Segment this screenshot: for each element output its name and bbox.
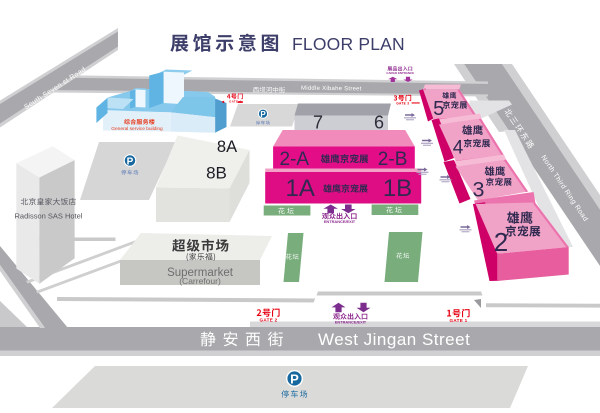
svg-text:7: 7 — [313, 113, 323, 133]
svg-text:2: 2 — [494, 227, 508, 257]
svg-text:3: 3 — [473, 178, 485, 202]
svg-text:P: P — [127, 156, 134, 167]
svg-text:2-A: 2-A — [280, 149, 310, 170]
svg-text:FLOOR PLAN: FLOOR PLAN — [292, 34, 405, 54]
svg-text:6: 6 — [374, 113, 384, 133]
svg-text:Radisson SAS Hotel: Radisson SAS Hotel — [15, 212, 83, 221]
svg-text:P: P — [290, 371, 299, 386]
svg-text:ENTRANCE/EXIT: ENTRANCE/EXIT — [324, 219, 356, 224]
svg-text:5: 5 — [433, 98, 444, 120]
svg-text:GATE 1: GATE 1 — [449, 318, 467, 323]
svg-text:(Carrefour): (Carrefour) — [179, 276, 221, 286]
svg-text:Middle Xibahe Street: Middle Xibahe Street — [301, 86, 362, 93]
svg-text:CARGO ENTRANCE: CARGO ENTRANCE — [386, 71, 414, 75]
svg-text:8B: 8B — [206, 164, 227, 183]
svg-text:GATE 2: GATE 2 — [259, 317, 277, 322]
svg-text:GATE 3: GATE 3 — [396, 101, 409, 105]
svg-text:8A: 8A — [217, 138, 237, 156]
svg-text:4: 4 — [453, 138, 464, 159]
svg-text:General service building: General service building — [111, 126, 163, 132]
svg-text:1A: 1A — [286, 175, 315, 202]
svg-text:West Jingan Street: West Jingan Street — [318, 330, 470, 349]
svg-text:2-B: 2-B — [378, 149, 408, 170]
svg-text:ENTRANCE/EXIT: ENTRANCE/EXIT — [335, 319, 367, 324]
svg-text:1B: 1B — [383, 175, 412, 202]
svg-text:P: P — [260, 110, 266, 119]
